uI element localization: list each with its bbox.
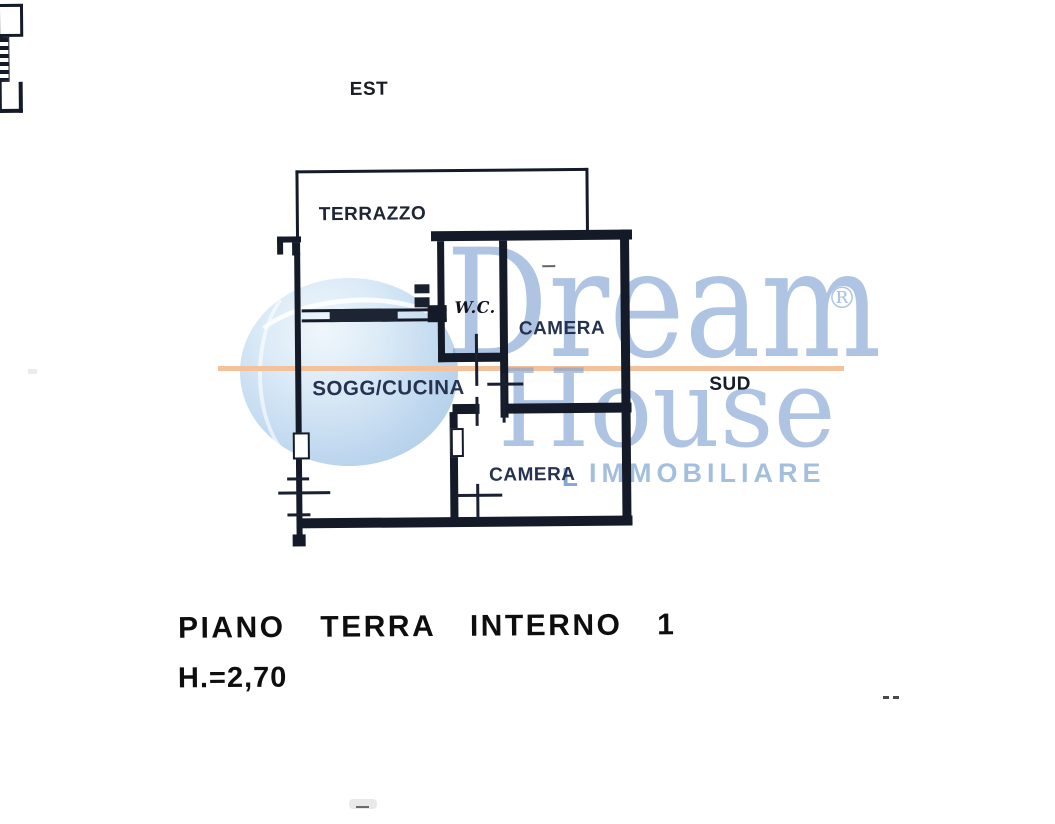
floor-plan: EST TERRAZZO W.C. CAMERA SOGG/CUCINA CAM… [0, 0, 1055, 824]
compass-label-est: EST [350, 80, 389, 99]
compass-label-sud: SUD [709, 374, 751, 393]
bottom-exterior-wall [296, 516, 632, 529]
terrace-left-wall [295, 170, 299, 238]
top-exterior-wall [431, 229, 632, 241]
room-label-terrazzo: TERRAZZO [319, 204, 427, 224]
right-wall-window [0, 37, 10, 82]
left-wall-tick-2 [278, 491, 330, 494]
left-jog-side [277, 237, 283, 255]
camera-pencil-dash [542, 265, 555, 267]
boiler-scribble [414, 284, 429, 293]
room-label-wc: W.C. [455, 300, 496, 316]
left-wall-tick-3 [287, 513, 310, 516]
right-exterior-wall [620, 230, 632, 522]
parapet-window [330, 309, 398, 323]
wc-bottom-wall [438, 353, 507, 363]
bottom-door-tick-v [476, 484, 479, 519]
left-wall-foot [293, 534, 306, 546]
left-wall-window [293, 432, 310, 459]
wc-door-tick [475, 334, 478, 386]
camera-bottom-door-jamb [451, 428, 464, 457]
terrace-top-wall [295, 168, 587, 174]
middle-door-tick-v2 [475, 397, 478, 426]
boiler-scribble [415, 297, 430, 307]
scan-artifact-dot [28, 369, 37, 374]
scan-artifact-dash [356, 806, 369, 808]
scan-artifact-dashes [883, 696, 899, 699]
bottom-door-tick-h [457, 494, 502, 497]
middle-door-tick-v [502, 374, 505, 423]
bottom-wall-stub [0, 82, 23, 113]
middle-door-tick-h [487, 382, 523, 385]
room-label-sogg-cucina: SOGG/CUCINA [312, 378, 465, 400]
left-wall-tick-1 [287, 477, 309, 480]
wc-left-wall [437, 241, 445, 362]
caption-floor-title: PIANO TERRA INTERNO 1 [178, 610, 677, 643]
room-label-camera-top: CAMERA [519, 319, 606, 339]
boiler-symbol [0, 4, 23, 37]
room-label-camera-bottom: CAMERA [489, 465, 576, 485]
terrace-right-wall [585, 168, 589, 232]
caption-height: H.=2,70 [178, 664, 288, 694]
middle-door-opening [479, 402, 500, 416]
